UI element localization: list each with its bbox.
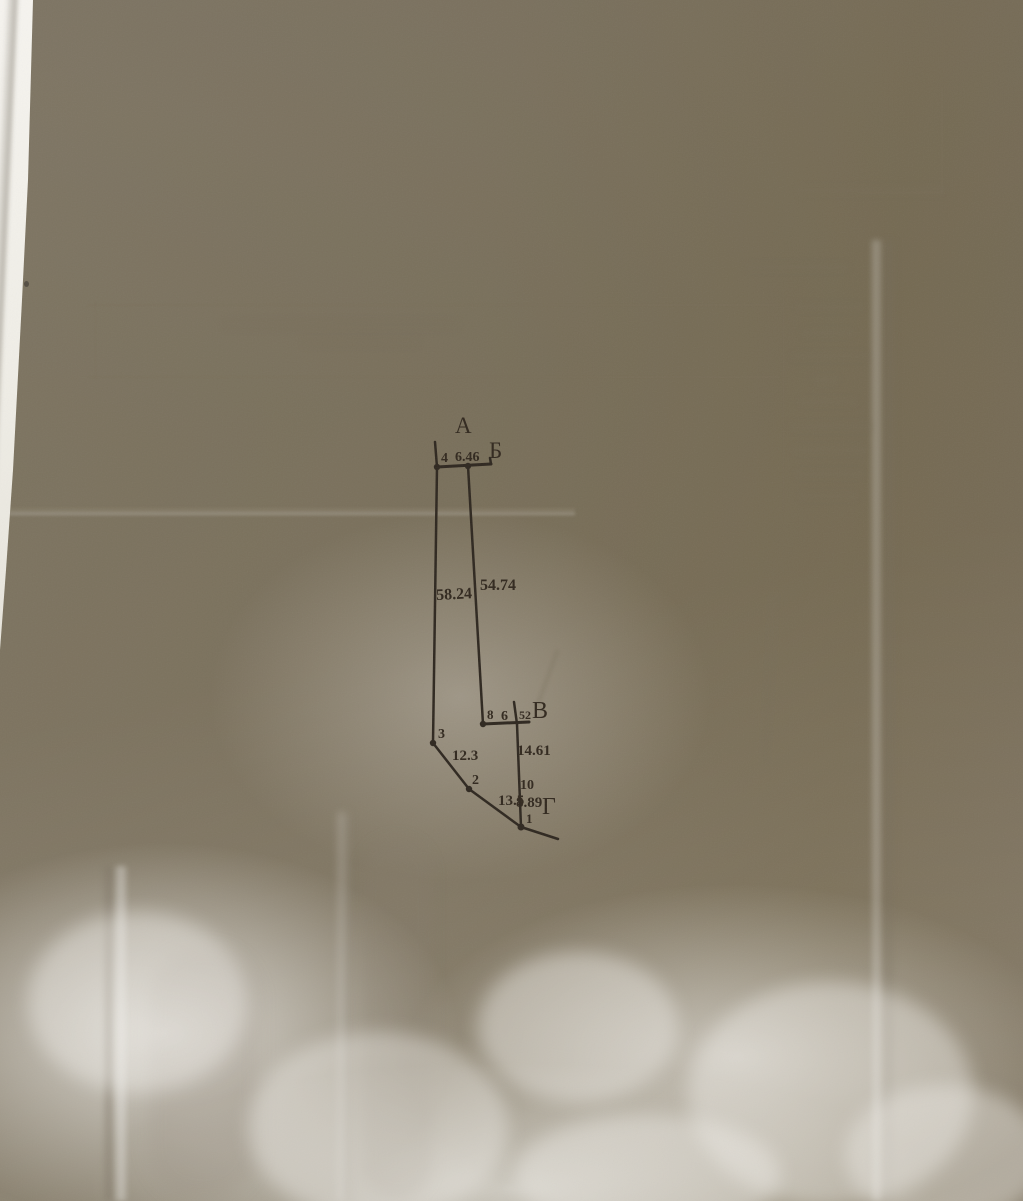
point-4-dot [434, 464, 440, 470]
length-8-part1: 6 [501, 709, 508, 724]
point-label-10: 10 [520, 778, 534, 793]
point-label-8: 8 [487, 707, 494, 722]
tick-above-v-line [514, 702, 517, 724]
line-4-3 [433, 467, 437, 743]
point-label-3: 3 [438, 727, 445, 742]
point-1-dot [518, 824, 525, 831]
length-4-b: 6.46 [455, 450, 480, 465]
length-8-part2: 52 [519, 708, 531, 722]
sketch-labels: А Б В Г 4 6.46 58.24 54.74 8 6 52 14.61 … [436, 413, 556, 826]
length-b-v: 54.74 [480, 577, 516, 594]
corner-label-a: А [455, 413, 472, 438]
boundary-lines [433, 442, 558, 839]
line-v-1 [517, 724, 521, 827]
length-v-10: 14.61 [517, 743, 551, 759]
point-label-1: 1 [526, 811, 533, 826]
tick-above-point-4 [435, 442, 437, 467]
length-10-1: 8.89 [516, 795, 542, 811]
corner-label-v: В [532, 698, 548, 724]
corner-label-b: Б [489, 438, 502, 463]
line-1-tail [521, 827, 558, 839]
point-label-2: 2 [472, 773, 479, 788]
point-8-dot [480, 721, 486, 727]
boundary-sketch: А Б В Г 4 6.46 58.24 54.74 8 6 52 14.61 … [0, 0, 1023, 1201]
point-3-dot [430, 740, 436, 746]
point-label-4: 4 [441, 451, 448, 466]
length-3-2: 12.3 [452, 748, 478, 764]
photo-of-survey-sketch: А Б В Г 4 6.46 58.24 54.74 8 6 52 14.61 … [0, 0, 1023, 1201]
corner-label-g: Г [542, 794, 556, 820]
length-4-3: 58.24 [436, 585, 473, 604]
